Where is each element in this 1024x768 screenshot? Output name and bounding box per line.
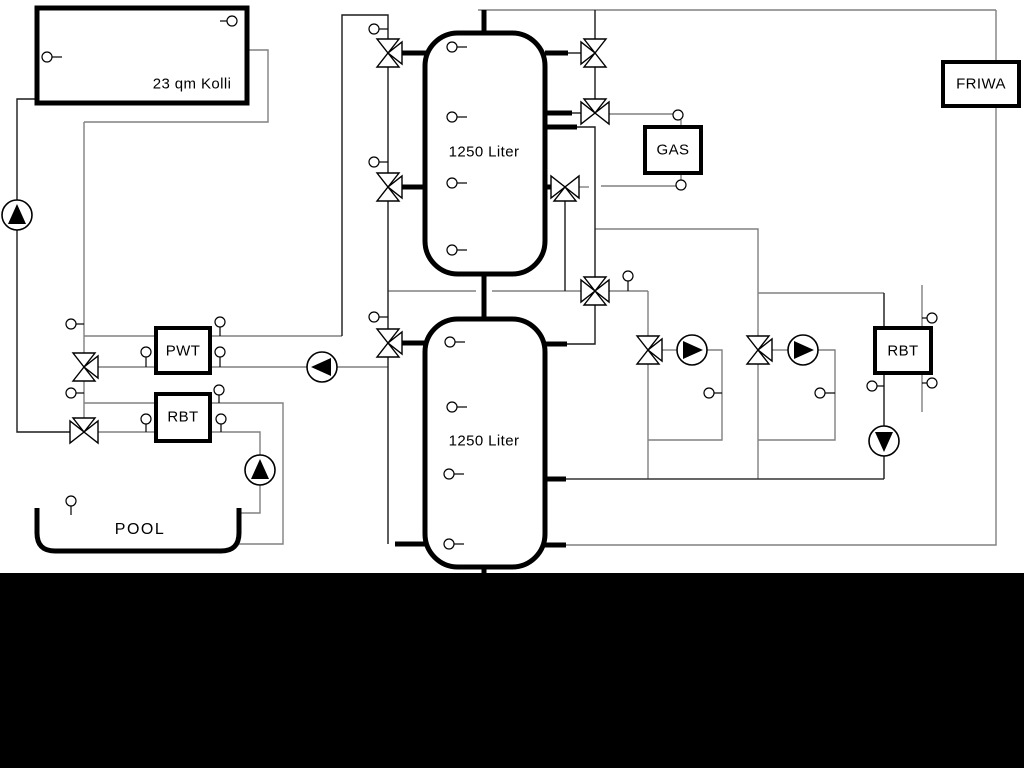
gas-label: GAS <box>657 142 690 159</box>
collector-label: 23 qm Kolli <box>153 76 232 93</box>
pool-label: POOL <box>115 521 165 539</box>
temp-sensor <box>216 414 226 432</box>
rbt-left-label: RBT <box>167 409 198 426</box>
temp-sensor <box>922 378 937 388</box>
hydraulic-schematic: 23 qm Kolli 1250 Liter 1250 Liter GAS FR… <box>0 0 1024 768</box>
valve-tank2-left <box>377 329 402 357</box>
tank1-label: 1250 Liter <box>449 144 520 161</box>
valve-heating-circuit-2 <box>747 336 772 364</box>
temp-sensor <box>815 388 835 398</box>
temp-sensor <box>867 381 884 391</box>
friwa-label: FRIWA <box>956 76 1006 93</box>
valve-rbt-supply <box>70 418 98 443</box>
pwt-label: PWT <box>166 343 201 360</box>
temp-sensor <box>623 271 633 291</box>
temp-sensor <box>215 317 225 336</box>
valve-gas-supply <box>581 99 609 124</box>
temp-sensor <box>673 110 683 120</box>
valve-tank1-right-top <box>581 39 606 67</box>
tank2-label: 1250 Liter <box>449 433 520 450</box>
temp-sensor <box>141 347 151 367</box>
temp-sensor <box>215 347 225 367</box>
temp-sensor <box>922 313 937 323</box>
temp-sensor <box>369 312 388 322</box>
valve-tank1-left-top <box>377 39 402 67</box>
valve-heating-circuit-1 <box>637 336 662 364</box>
temp-sensor <box>214 385 224 403</box>
temp-sensor <box>369 157 388 167</box>
rbt-right-label: RBT <box>887 343 918 360</box>
temp-sensor <box>66 388 84 398</box>
circuit2-pump <box>788 335 818 365</box>
temp-sensor <box>676 180 686 190</box>
valve-distribution <box>581 277 609 305</box>
temp-sensor <box>369 24 388 34</box>
temp-sensor <box>66 319 84 329</box>
valve-pwt-supply <box>73 353 98 381</box>
temp-sensor <box>141 414 151 432</box>
footer-bar <box>0 573 1024 768</box>
circuit1-pump <box>677 335 707 365</box>
pool-pump <box>245 455 275 485</box>
rbt-right-pump <box>869 426 899 456</box>
pwt-pump <box>307 352 337 382</box>
valve-tank1-left-mid <box>377 173 402 201</box>
temp-sensor <box>704 388 722 398</box>
schematic-canvas <box>0 0 1024 768</box>
solar-pump <box>2 200 32 230</box>
valve-gas-return <box>551 176 579 201</box>
